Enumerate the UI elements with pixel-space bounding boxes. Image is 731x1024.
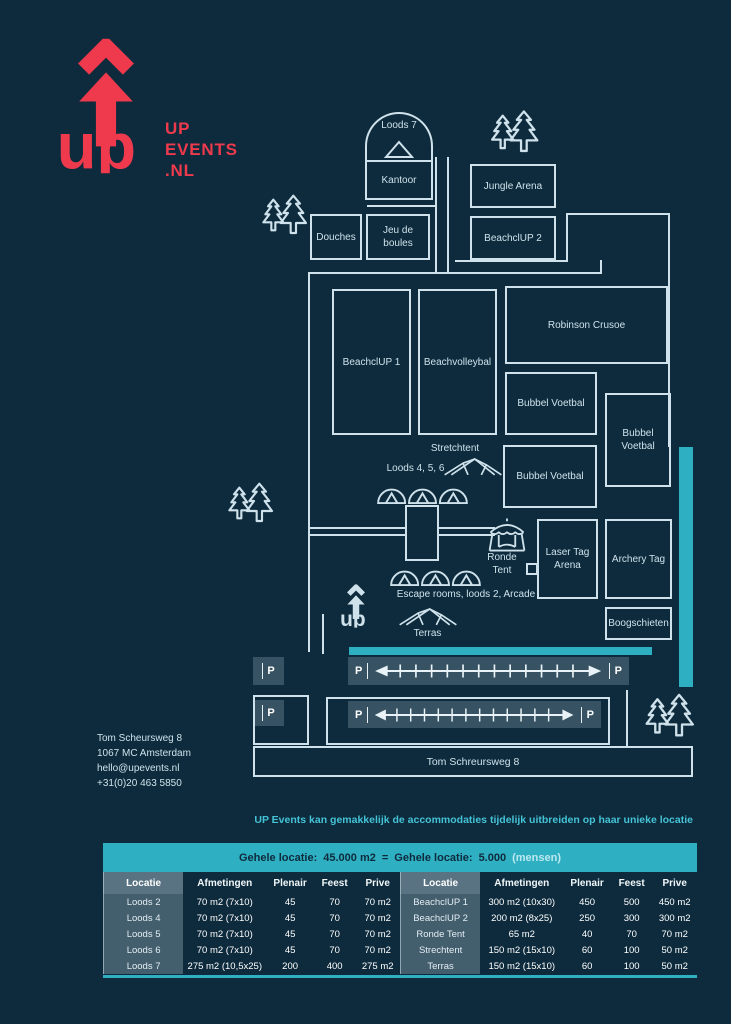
value-cell: 70 xyxy=(314,929,356,940)
road-line xyxy=(308,272,310,652)
table-row: Loods 670 m2 (7x10)457070 m2 xyxy=(103,942,400,958)
table-row: BeachclUP 1300 m2 (10x30)450500450 m2 xyxy=(400,894,697,910)
road-line xyxy=(322,614,324,654)
column-header: Afmetingen xyxy=(183,878,266,889)
value-cell: 45 xyxy=(266,913,314,924)
map-label-stretchtent: Stretchtent xyxy=(413,443,497,456)
value-cell: 250 xyxy=(563,913,611,924)
site-map: Loods 7 xyxy=(0,0,731,800)
table-bottom-line xyxy=(103,975,697,978)
corridor-outline xyxy=(405,505,439,561)
value-cell: 300 xyxy=(611,913,653,924)
contact-email[interactable]: hello@upevents.nl xyxy=(97,761,267,776)
map-label-loods-4-5-6: Loods 4, 5, 6 xyxy=(368,463,463,476)
flyer-page: UP EVENTS .NL Loods 7 xyxy=(0,0,731,1024)
table-row: BeachclUP 2200 m2 (8x25)250300300 m2 xyxy=(400,910,697,926)
teal-bar-horizontal xyxy=(349,647,652,655)
value-cell: 70 m2 xyxy=(355,913,400,924)
gehele-locatie-label: Gehele locatie: xyxy=(239,852,317,864)
table-row: Loods 470 m2 (7x10)457070 m2 xyxy=(103,910,400,926)
location-cell: BeachclUP 1 xyxy=(400,894,480,910)
value-cell: 45 xyxy=(266,945,314,956)
parking-p-label: P xyxy=(355,709,362,721)
table-row: Strechtent150 m2 (15x10)6010050 m2 xyxy=(400,942,697,958)
value-cell: 300 m2 xyxy=(652,913,697,924)
mensen-suffix: (mensen) xyxy=(512,852,561,864)
room-bubbel-voetbal-1: Bubbel Voetbal xyxy=(505,372,597,435)
road-line xyxy=(600,260,602,274)
up-logo-small-icon xyxy=(338,576,374,636)
room-jeu-de-boules: Jeu de boules xyxy=(366,214,430,260)
road-line xyxy=(566,213,568,262)
map-label-ronde-tent: Ronde Tent xyxy=(477,552,527,577)
value-cell: 400 xyxy=(314,961,356,972)
room-label: Loods 7 xyxy=(381,120,417,131)
room-beachvolleybal: Beachvolleybal xyxy=(418,289,497,435)
value-cell: 70 m2 xyxy=(355,929,400,940)
table-header-row-left: LocatieAfmetingenPlenairFeestPrive xyxy=(103,872,400,894)
trees-icon xyxy=(488,110,540,158)
value-cell: 60 xyxy=(563,945,611,956)
location-cell: BeachclUP 2 xyxy=(400,910,480,926)
value-cell: 200 xyxy=(266,961,314,972)
road-line xyxy=(310,527,407,529)
contact-block: Tom Scheursweg 8 1067 MC Amsterdam hello… xyxy=(97,731,267,791)
value-cell: 65 m2 xyxy=(480,929,563,940)
parking-divider xyxy=(367,663,368,679)
room-jungle-arena: Jungle Arena xyxy=(470,164,556,208)
value-cell: 500 xyxy=(611,897,653,908)
room-bubbel-voetbal-2: Bubbel Voetbal xyxy=(605,393,671,487)
location-cell: Ronde Tent xyxy=(400,926,480,942)
map-label-escape-rooms-loods2-arcade: Escape rooms, loods 2, Arcade xyxy=(368,589,564,602)
parking-p-label: P xyxy=(587,709,594,721)
room-laser-tag-arena: Laser Tag Arena xyxy=(537,519,598,599)
column-header: Locatie xyxy=(103,872,183,894)
table-row: Terras150 m2 (15x10)6010050 m2 xyxy=(400,958,697,974)
street-label-box: Tom Schreursweg 8 xyxy=(253,746,693,777)
value-cell: 150 m2 (15x10) xyxy=(480,961,563,972)
capacity-table-right: LocatieAfmetingenPlenairFeestPriveBeachc… xyxy=(400,872,697,974)
parking-p-label: P xyxy=(267,707,274,719)
trees-icon xyxy=(260,194,308,240)
table-row: Loods 270 m2 (7x10)457070 m2 xyxy=(103,894,400,910)
value-cell: 100 xyxy=(611,961,653,972)
value-cell: 70 m2 (7x10) xyxy=(183,929,266,940)
column-header: Prive xyxy=(355,878,400,889)
value-cell: 70 m2 (7x10) xyxy=(183,945,266,956)
column-header: Prive xyxy=(652,878,697,889)
value-cell: 150 m2 (15x10) xyxy=(480,945,563,956)
value-cell: 40 xyxy=(563,929,611,940)
footer-intro-text: UP Events kan gemakkelijk de accommodati… xyxy=(103,814,693,826)
table-row: Loods 570 m2 (7x10)457070 m2 xyxy=(103,926,400,942)
trees-icon xyxy=(643,692,695,744)
parking-row-2: P P xyxy=(348,701,601,728)
table-header-row-right: LocatieAfmetingenPlenairFeestPrive xyxy=(400,872,697,894)
teal-bar-vertical xyxy=(679,447,693,687)
tent-triangle-icon xyxy=(384,140,414,158)
road-line xyxy=(455,260,568,262)
parking-arrow-icon xyxy=(373,707,575,723)
parking-divider xyxy=(609,663,610,679)
table-header-bar: Gehele locatie: 45.000 m2 = Gehele locat… xyxy=(103,843,697,872)
location-cell: Loods 4 xyxy=(103,910,183,926)
value-cell: 70 m2 xyxy=(355,945,400,956)
value-cell: 70 xyxy=(314,897,356,908)
value-cell: 70 xyxy=(314,945,356,956)
loods-arches-icon xyxy=(375,478,470,505)
parking-divider xyxy=(262,705,263,721)
capacity-table-left: LocatieAfmetingenPlenairFeestPriveLoods … xyxy=(103,872,400,974)
value-cell: 70 m2 xyxy=(355,897,400,908)
value-cell: 100 xyxy=(611,945,653,956)
parking-divider xyxy=(581,707,582,723)
gehele-locatie-people: 5.000 xyxy=(479,852,507,864)
street-label: Tom Schreursweg 8 xyxy=(427,756,520,768)
trees-icon xyxy=(226,482,274,528)
value-cell: 70 m2 xyxy=(652,929,697,940)
location-cell: Loods 2 xyxy=(103,894,183,910)
room-robinson-crusoe: Robinson Crusoe xyxy=(505,286,668,364)
contact-city-line: 1067 MC Amsterdam xyxy=(97,746,267,761)
parking-arrow-icon xyxy=(373,663,603,679)
value-cell: 450 m2 xyxy=(652,897,697,908)
value-cell: 45 xyxy=(266,929,314,940)
location-cell: Strechtent xyxy=(400,942,480,958)
parking-divider xyxy=(367,707,368,723)
table-row: Loods 7275 m2 (10,5x25)200400275 m2 xyxy=(103,958,400,974)
room-beachclup-2: BeachclUP 2 xyxy=(470,216,556,260)
room-kantoor: Kantoor xyxy=(365,160,433,200)
room-bubbel-voetbal-3: Bubbel Voetbal xyxy=(503,445,597,508)
location-cell: Loods 6 xyxy=(103,942,183,958)
value-cell: 70 xyxy=(611,929,653,940)
escape-arches-icon xyxy=(388,560,483,587)
road-line xyxy=(310,534,407,536)
room-loods-7: Loods 7 xyxy=(365,112,433,160)
value-cell: 275 m2 xyxy=(355,961,400,972)
value-cell: 70 m2 (7x10) xyxy=(183,913,266,924)
room-beachclup-1: BeachclUP 1 xyxy=(332,289,411,435)
road-line xyxy=(626,690,628,748)
terras-tent-icon xyxy=(398,605,458,628)
parking-box-2: P xyxy=(253,700,284,726)
parking-p-label: P xyxy=(355,665,362,677)
table-row: Ronde Tent65 m2407070 m2 xyxy=(400,926,697,942)
value-cell: 50 m2 xyxy=(652,945,697,956)
column-header: Afmetingen xyxy=(480,878,563,889)
parking-p-label: P xyxy=(615,665,622,677)
column-header: Feest xyxy=(611,878,653,889)
parking-row-1: P P xyxy=(348,657,629,685)
room-douches: Douches xyxy=(310,214,362,260)
value-cell: 45 xyxy=(266,897,314,908)
road-line xyxy=(435,157,437,273)
contact-address-line: Tom Scheursweg 8 xyxy=(97,731,267,746)
equals-sign: = xyxy=(382,852,388,864)
contact-phone[interactable]: +31(0)20 463 5850 xyxy=(97,776,267,791)
column-header: Locatie xyxy=(400,872,480,894)
room-boogschieten: Boogschieten xyxy=(605,607,672,640)
parking-box-1: P xyxy=(253,657,284,685)
value-cell: 275 m2 (10,5x25) xyxy=(183,961,266,972)
value-cell: 200 m2 (8x25) xyxy=(480,913,563,924)
parking-divider xyxy=(262,663,263,679)
gehele-locatie-label: Gehele locatie: xyxy=(394,852,472,864)
road-line xyxy=(447,157,449,273)
map-label-terras: Terras xyxy=(400,628,455,641)
gehele-locatie-m2: 45.000 m2 xyxy=(323,852,376,864)
value-cell: 70 m2 (7x10) xyxy=(183,897,266,908)
location-cell: Terras xyxy=(400,958,480,974)
location-cell: Loods 7 xyxy=(103,958,183,974)
column-header: Plenair xyxy=(563,878,611,889)
value-cell: 450 xyxy=(563,897,611,908)
value-cell: 70 xyxy=(314,913,356,924)
column-header: Feest xyxy=(314,878,356,889)
value-cell: 60 xyxy=(563,961,611,972)
value-cell: 300 m2 (10x30) xyxy=(480,897,563,908)
road-line xyxy=(566,213,670,215)
value-cell: 50 m2 xyxy=(652,961,697,972)
room-archery-tag: Archery Tag xyxy=(605,519,672,599)
road-line xyxy=(367,205,435,207)
ronde-tent-icon xyxy=(485,516,529,554)
column-header: Plenair xyxy=(266,878,314,889)
parking-p-label: P xyxy=(267,665,274,677)
location-cell: Loods 5 xyxy=(103,926,183,942)
road-line xyxy=(308,272,602,274)
